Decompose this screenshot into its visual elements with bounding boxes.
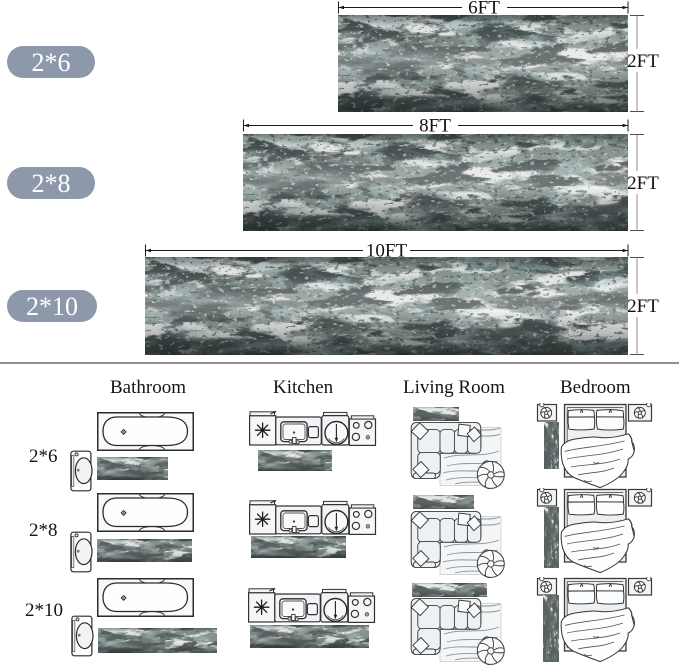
svg-text:10FT: 10FT — [366, 241, 408, 262]
svg-text:6FT: 6FT — [468, 0, 500, 19]
svg-text:8FT: 8FT — [419, 116, 451, 137]
svg-text:2FT: 2FT — [627, 296, 659, 317]
svg-text:2FT: 2FT — [627, 173, 659, 194]
svg-text:2FT: 2FT — [627, 51, 659, 72]
